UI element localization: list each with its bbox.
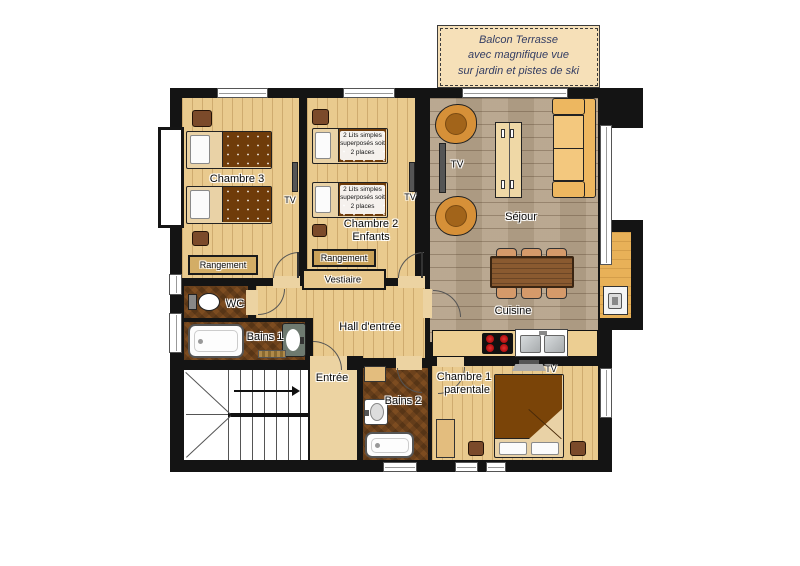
- sink-basin: [286, 329, 300, 351]
- window-left-wc: [169, 274, 182, 295]
- cabinet-handle: [510, 180, 514, 189]
- balcony-note-line2: avec magnifique vue: [438, 48, 599, 63]
- label-rangement-2: Rangement: [321, 253, 368, 263]
- floor-plan: Balcon Terrasse avec magnifique vue sur …: [0, 0, 800, 566]
- stair-winder-line: [186, 414, 228, 415]
- window-right-chambre1: [600, 368, 612, 418]
- room-label-chambre2-line1: Chambre 2: [344, 218, 398, 230]
- room-label-bains2: Bains 2: [385, 395, 422, 407]
- wall-segment-entree: [347, 356, 363, 370]
- cabinet-handle: [510, 129, 514, 138]
- wall-corner-block: [598, 88, 643, 128]
- window-top-chambre3: [217, 88, 268, 98]
- window-right-sejour: [600, 125, 612, 265]
- bunk-bed: 2 Lits simples superposés soit 2 places: [312, 128, 388, 164]
- tv-label-chambre1: TV: [545, 364, 557, 374]
- sofa-seat: [553, 115, 584, 181]
- tv-icon: [292, 162, 298, 192]
- nightstand: [468, 441, 484, 456]
- stair-treads-lower: [228, 417, 308, 460]
- room-label-wc: WC: [226, 298, 244, 310]
- bathtub-drain: [375, 443, 380, 448]
- nightstand: [570, 441, 586, 456]
- burner: [500, 344, 508, 352]
- dining-chair: [496, 287, 517, 299]
- door-leaf: [297, 252, 299, 278]
- tv-label-chambre3: TV: [284, 195, 296, 205]
- cabinet-sejour: [495, 122, 522, 198]
- faucet: [365, 410, 369, 416]
- sofa-armrest: [552, 98, 585, 115]
- arrow-head-icon: [292, 386, 300, 396]
- tv-icon: [519, 360, 539, 364]
- room-label-hall: Hall d'entrée: [339, 321, 400, 333]
- door-leaf: [421, 252, 423, 278]
- sofa: [552, 98, 596, 198]
- label-rangement-1: Rangement: [200, 260, 247, 270]
- stair-winder-line: [186, 415, 231, 458]
- cabinet-handle: [501, 129, 505, 138]
- balcony-note-line3: sur jardin et pistes de ski: [438, 64, 599, 79]
- balcony-note-line1: Balcon Terrasse: [438, 33, 599, 48]
- bathroom-cabinet: [364, 366, 386, 382]
- bed-cover: [222, 132, 271, 167]
- nightstand: [312, 224, 327, 237]
- window-bottom-chambre1-b: [486, 462, 506, 472]
- room-label-chambre1-line2: parentale: [444, 384, 490, 396]
- tv-stand: [512, 364, 546, 371]
- dining-chair: [521, 287, 542, 299]
- door-gap-chambre1: [437, 357, 464, 367]
- stair-winder-line: [185, 372, 230, 415]
- armchair-cushion: [445, 205, 467, 227]
- kitchen-sink: [515, 329, 568, 357]
- pillow: [315, 132, 331, 159]
- faucet: [300, 337, 304, 344]
- desk: [436, 419, 455, 458]
- bathtub-drain: [198, 339, 203, 344]
- burner: [486, 335, 494, 343]
- window-bay-chambre3: [158, 127, 184, 228]
- tv-icon: [409, 162, 415, 192]
- pillow: [499, 442, 527, 455]
- sofa-armrest: [552, 181, 585, 198]
- cabinet-handle: [501, 180, 505, 189]
- stair-divider: [228, 413, 308, 417]
- armchair: [435, 196, 477, 236]
- dining-chair: [546, 287, 567, 299]
- window-bottom-bains2: [383, 462, 417, 472]
- bed-cover: [222, 187, 271, 222]
- window-left-bains1: [169, 313, 182, 353]
- nightstand: [312, 109, 329, 125]
- cooktop: [482, 333, 513, 354]
- pillow: [531, 442, 559, 455]
- pillow: [190, 135, 210, 164]
- room-label-chambre2-line2: Enfants: [352, 231, 389, 243]
- bed-double: [494, 374, 564, 458]
- bath-mat: [258, 350, 286, 358]
- tv-icon: [439, 143, 446, 193]
- pillow: [190, 190, 210, 219]
- sink-basin: [544, 335, 565, 353]
- room-label-entree: Entrée: [316, 372, 348, 384]
- burner: [500, 335, 508, 343]
- burner: [486, 344, 494, 352]
- room-label-chambre1-line1: Chambre 1: [437, 371, 491, 383]
- tv-label-sejour: TV: [451, 160, 464, 171]
- dining-table: [490, 256, 574, 288]
- room-label-bains1: Bains 1: [247, 331, 284, 343]
- room-label-chambre3: Chambre 3: [210, 173, 264, 185]
- door-gap-wc: [246, 290, 258, 315]
- washer-drum: [612, 297, 618, 305]
- toilet-bowl: [198, 293, 220, 311]
- window-balcony-door: [462, 88, 568, 98]
- bathtub: [365, 432, 414, 458]
- nightstand: [192, 231, 209, 246]
- armchair-cushion: [445, 113, 467, 135]
- tv-label-chambre2: TV: [404, 192, 416, 202]
- bunk-bed-label: 2 Lits simples superposés soit 2 places: [340, 185, 385, 214]
- window-bottom-chambre1-a: [455, 462, 478, 472]
- sink-basin: [370, 403, 384, 421]
- bunk-bed: 2 Lits simples superposés soit 2 places: [312, 182, 388, 218]
- pillow: [315, 186, 331, 213]
- bunk-bed-label: 2 Lits simples superposés soit 2 places: [340, 131, 385, 160]
- sink-basin: [520, 335, 541, 353]
- bed-single: [186, 131, 272, 169]
- armchair: [435, 104, 477, 144]
- door-gap-cuisine: [423, 289, 432, 318]
- stair-direction-arrow: [234, 390, 292, 392]
- staircase: [184, 370, 308, 460]
- label-vestiaire: Vestiaire: [325, 275, 361, 286]
- balcony-note: Balcon Terrasse avec magnifique vue sur …: [437, 25, 600, 88]
- appliance-washer: [603, 286, 628, 315]
- room-label-sejour: Séjour: [505, 211, 537, 223]
- sofa-cushion-divider: [554, 148, 583, 149]
- faucet: [539, 331, 547, 335]
- nightstand: [192, 110, 212, 127]
- toilet-tank: [188, 294, 197, 310]
- room-label-cuisine: Cuisine: [495, 305, 532, 317]
- window-top-chambre2: [343, 88, 395, 98]
- bed-single: [186, 186, 272, 224]
- bathtub: [188, 324, 244, 358]
